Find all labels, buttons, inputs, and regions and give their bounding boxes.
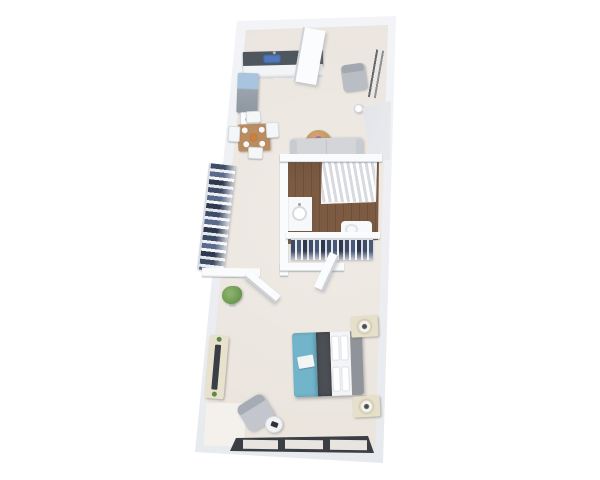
lamp-icon	[358, 320, 372, 334]
side-table-item	[270, 421, 278, 428]
pillow	[331, 336, 340, 361]
nightstand	[352, 395, 380, 417]
pillow	[332, 367, 341, 392]
dining-chair	[248, 147, 263, 160]
interior-wall	[280, 154, 382, 162]
potted-plant	[222, 286, 242, 308]
kitchen-sink	[263, 54, 281, 63]
place-setting	[259, 127, 265, 133]
dining-chair	[228, 126, 241, 143]
place-setting	[259, 141, 265, 147]
pillow	[341, 366, 350, 391]
dining-chair	[246, 111, 262, 124]
interior-wall	[280, 154, 288, 276]
window-pane	[330, 440, 367, 451]
window-pane	[243, 440, 278, 449]
bed	[292, 331, 364, 397]
small-plant	[216, 337, 221, 342]
round-side-table	[265, 416, 283, 433]
entry-armchair	[340, 62, 368, 92]
lamp-icon	[360, 400, 374, 414]
plant-leaves	[222, 286, 242, 304]
tv	[211, 344, 221, 389]
armchair-back	[341, 63, 364, 74]
bed-headboard	[350, 331, 364, 395]
window-pane	[285, 440, 323, 450]
floorplan-canvas	[0, 0, 600, 480]
nightstand	[350, 315, 378, 337]
faucet-icon	[273, 51, 276, 54]
pillow	[340, 335, 349, 360]
faucet-icon	[298, 203, 301, 206]
bathroom-vanity	[288, 197, 312, 231]
fruit-bowl	[250, 134, 257, 141]
vanity-sink	[292, 206, 307, 221]
place-setting	[242, 127, 248, 133]
floor-vase	[354, 104, 363, 113]
bed-sheets	[330, 331, 352, 396]
dining-chair	[265, 122, 279, 139]
bathtub-with-curtain	[320, 159, 377, 204]
refrigerator	[236, 73, 258, 114]
small-plant	[212, 391, 217, 396]
